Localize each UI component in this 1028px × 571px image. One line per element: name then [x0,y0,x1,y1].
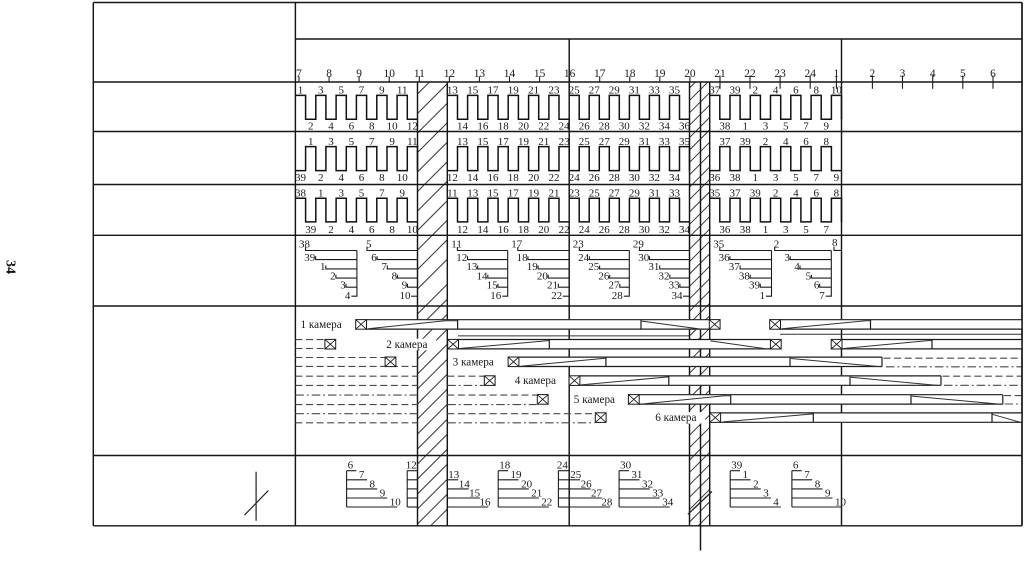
svg-text:13: 13 [457,136,469,148]
svg-text:33: 33 [649,85,661,97]
svg-text:7: 7 [813,172,819,184]
svg-text:6: 6 [793,85,799,97]
svg-text:4: 4 [794,261,800,273]
svg-text:8: 8 [369,121,375,133]
svg-text:26: 26 [599,224,611,236]
svg-text:39: 39 [731,460,743,472]
svg-text:11: 11 [414,68,425,80]
svg-text:14: 14 [504,68,516,80]
svg-text:34: 34 [659,121,671,133]
svg-text:15: 15 [477,136,489,148]
svg-text:38: 38 [295,187,307,199]
svg-text:20: 20 [684,68,696,80]
svg-text:20: 20 [518,121,530,133]
svg-text:30: 30 [620,460,632,472]
svg-text:21: 21 [549,187,560,199]
svg-text:7: 7 [804,469,810,481]
svg-text:7: 7 [819,290,825,302]
svg-text:34: 34 [2,260,17,274]
svg-text:29: 29 [619,136,631,148]
svg-text:9: 9 [824,121,830,133]
svg-text:8: 8 [815,478,821,490]
svg-text:36: 36 [709,172,721,184]
svg-text:2: 2 [773,187,779,199]
svg-text:5 камера: 5 камера [574,394,615,406]
svg-text:25: 25 [569,85,581,97]
svg-text:5: 5 [783,121,789,133]
svg-text:39: 39 [304,252,316,264]
svg-text:38: 38 [730,172,742,184]
svg-text:18: 18 [499,460,511,472]
svg-text:18: 18 [624,68,636,80]
svg-text:24: 24 [557,460,569,472]
svg-text:12: 12 [457,224,468,236]
svg-text:3: 3 [783,224,789,236]
svg-text:5: 5 [960,68,966,80]
svg-text:1: 1 [753,172,759,184]
svg-text:16: 16 [480,496,492,508]
svg-text:10: 10 [831,85,843,97]
svg-text:22: 22 [551,290,562,302]
svg-text:7: 7 [369,136,375,148]
svg-text:6: 6 [359,172,365,184]
svg-text:4: 4 [345,290,351,302]
svg-text:6 камера: 6 камера [655,412,696,424]
svg-text:2: 2 [774,239,780,251]
svg-text:2: 2 [870,68,876,80]
svg-text:13: 13 [474,68,486,80]
svg-text:8: 8 [834,187,840,199]
svg-text:1: 1 [834,68,840,80]
svg-text:6: 6 [349,121,355,133]
svg-text:3 камера: 3 камера [453,356,494,368]
svg-text:10: 10 [384,68,396,80]
svg-text:39: 39 [305,224,317,236]
svg-text:4: 4 [773,85,779,97]
svg-text:1: 1 [760,290,766,302]
svg-text:15: 15 [534,68,546,80]
svg-text:1: 1 [742,121,748,133]
svg-text:16: 16 [498,224,510,236]
svg-text:10: 10 [387,121,399,133]
svg-text:28: 28 [599,121,611,133]
svg-text:18: 18 [518,224,530,236]
svg-text:20: 20 [528,172,540,184]
svg-text:30: 30 [629,172,641,184]
svg-text:34: 34 [679,224,691,236]
svg-text:30: 30 [639,224,651,236]
svg-text:3: 3 [784,252,790,264]
svg-text:35: 35 [713,239,725,251]
svg-text:39: 39 [295,172,307,184]
svg-text:8: 8 [370,478,376,490]
svg-text:17: 17 [488,85,500,97]
svg-text:9: 9 [399,187,405,199]
svg-text:14: 14 [477,224,489,236]
svg-text:11: 11 [447,187,458,199]
svg-text:22: 22 [549,172,560,184]
svg-text:29: 29 [633,239,645,251]
svg-text:2: 2 [308,121,314,133]
svg-text:23: 23 [549,85,561,97]
svg-text:26: 26 [589,172,601,184]
svg-text:17: 17 [511,239,523,251]
svg-text:39: 39 [750,187,762,199]
svg-text:21: 21 [528,85,539,97]
svg-text:5: 5 [793,172,799,184]
svg-text:1 камера: 1 камера [301,319,342,331]
svg-text:2: 2 [318,172,324,184]
svg-text:6: 6 [793,460,799,472]
svg-text:12: 12 [407,121,418,133]
svg-text:4 камера: 4 камера [515,375,556,387]
svg-text:9: 9 [825,487,831,499]
svg-text:34: 34 [669,172,681,184]
svg-text:16: 16 [490,290,502,302]
svg-text:31: 31 [631,469,642,481]
svg-text:8: 8 [824,136,830,148]
svg-text:33: 33 [659,136,671,148]
svg-text:32: 32 [649,172,660,184]
svg-text:13: 13 [467,187,479,199]
svg-text:35: 35 [709,187,721,199]
svg-text:1: 1 [298,85,304,97]
svg-text:23: 23 [573,239,585,251]
svg-text:7: 7 [379,187,385,199]
svg-text:31: 31 [639,136,650,148]
svg-text:5: 5 [359,187,365,199]
svg-text:9: 9 [379,85,385,97]
svg-text:24: 24 [559,121,571,133]
svg-text:12: 12 [406,460,417,472]
svg-text:6: 6 [348,460,354,472]
svg-text:6: 6 [369,224,375,236]
svg-text:14: 14 [457,121,469,133]
svg-text:22: 22 [541,496,552,508]
svg-text:12: 12 [444,68,456,80]
svg-text:16: 16 [477,121,489,133]
svg-text:28: 28 [601,496,613,508]
svg-text:8: 8 [813,85,819,97]
svg-text:35: 35 [679,136,691,148]
svg-text:28: 28 [612,290,624,302]
svg-text:1: 1 [308,136,314,148]
svg-text:2: 2 [753,85,759,97]
svg-text:4: 4 [338,172,344,184]
svg-text:10: 10 [390,496,402,508]
svg-text:16: 16 [488,172,500,184]
svg-text:37: 37 [719,136,731,148]
svg-text:15: 15 [488,187,500,199]
svg-text:27: 27 [609,187,621,199]
svg-text:15: 15 [467,85,479,97]
svg-text:3: 3 [900,68,906,80]
svg-text:8: 8 [326,68,332,80]
svg-text:22: 22 [559,224,570,236]
svg-text:2 камера: 2 камера [386,339,427,351]
svg-text:7: 7 [824,224,830,236]
svg-text:17: 17 [498,136,510,148]
svg-text:4: 4 [328,121,334,133]
svg-text:23: 23 [774,68,786,80]
svg-text:2: 2 [763,136,769,148]
svg-text:32: 32 [659,224,670,236]
svg-text:4: 4 [793,187,799,199]
svg-text:4: 4 [349,224,355,236]
svg-text:27: 27 [589,85,601,97]
svg-text:4: 4 [930,68,936,80]
svg-text:3: 3 [318,85,324,97]
svg-text:1: 1 [743,469,749,481]
svg-text:16: 16 [564,68,576,80]
svg-text:9: 9 [389,136,395,148]
svg-text:6: 6 [813,187,819,199]
svg-text:19: 19 [508,85,520,97]
svg-text:3: 3 [338,187,344,199]
svg-text:28: 28 [619,224,631,236]
svg-text:17: 17 [594,68,606,80]
svg-text:6: 6 [371,252,377,264]
svg-text:2: 2 [328,224,334,236]
svg-text:19: 19 [654,68,666,80]
svg-text:3: 3 [328,136,334,148]
svg-text:27: 27 [599,136,611,148]
svg-text:18: 18 [508,172,520,184]
svg-text:3: 3 [763,121,769,133]
svg-text:9: 9 [356,68,362,80]
svg-text:7: 7 [803,121,809,133]
svg-text:7: 7 [359,85,365,97]
svg-text:23: 23 [559,136,571,148]
svg-text:3: 3 [763,487,769,499]
svg-text:1: 1 [320,261,326,273]
svg-text:26: 26 [579,121,591,133]
svg-text:38: 38 [299,239,311,251]
svg-text:17: 17 [508,187,520,199]
svg-text:14: 14 [467,172,479,184]
svg-text:10: 10 [835,496,847,508]
svg-text:21: 21 [538,136,549,148]
svg-text:5: 5 [338,85,344,97]
svg-text:5: 5 [349,136,355,148]
svg-text:1: 1 [763,224,769,236]
svg-text:2: 2 [753,478,759,490]
svg-text:8: 8 [392,270,398,282]
svg-text:28: 28 [609,172,621,184]
svg-text:31: 31 [649,187,660,199]
svg-text:8: 8 [389,224,395,236]
svg-text:37: 37 [709,85,721,97]
svg-text:22: 22 [538,121,549,133]
svg-text:4: 4 [783,136,789,148]
svg-text:29: 29 [629,187,641,199]
svg-text:12: 12 [447,172,458,184]
svg-text:2: 2 [330,270,336,282]
svg-text:24: 24 [805,68,817,80]
svg-text:30: 30 [619,121,631,133]
svg-text:4: 4 [773,496,779,508]
svg-text:7: 7 [296,68,302,80]
svg-text:25: 25 [589,187,601,199]
svg-text:39: 39 [740,136,752,148]
svg-text:21: 21 [714,68,726,80]
svg-text:24: 24 [569,172,581,184]
svg-text:6: 6 [803,136,809,148]
svg-text:13: 13 [447,85,459,97]
svg-text:29: 29 [609,85,621,97]
svg-text:1: 1 [318,187,324,199]
svg-text:11: 11 [407,136,418,148]
svg-text:10: 10 [397,172,409,184]
svg-text:31: 31 [629,85,640,97]
svg-text:38: 38 [740,224,752,236]
svg-text:5: 5 [806,270,812,282]
svg-text:35: 35 [669,85,681,97]
svg-text:8: 8 [832,237,838,249]
svg-text:24: 24 [579,224,591,236]
svg-text:32: 32 [639,121,650,133]
svg-text:5: 5 [366,239,372,251]
svg-text:36: 36 [719,224,731,236]
svg-text:36: 36 [679,121,691,133]
svg-text:20: 20 [538,224,550,236]
svg-text:38: 38 [719,121,731,133]
svg-text:3: 3 [773,172,779,184]
svg-text:33: 33 [669,187,681,199]
svg-text:34: 34 [662,496,674,508]
svg-text:19: 19 [528,187,540,199]
svg-text:6: 6 [990,68,996,80]
svg-text:37: 37 [730,187,742,199]
svg-text:9: 9 [834,172,840,184]
svg-text:19: 19 [518,136,530,148]
svg-text:5: 5 [803,224,809,236]
svg-text:11: 11 [397,85,408,97]
svg-text:18: 18 [498,121,510,133]
svg-text:7: 7 [359,469,365,481]
svg-text:25: 25 [579,136,591,148]
svg-text:10: 10 [400,290,412,302]
svg-text:11: 11 [451,239,462,251]
svg-text:10: 10 [407,224,419,236]
svg-text:23: 23 [569,187,581,199]
svg-text:8: 8 [379,172,385,184]
svg-text:7: 7 [382,261,388,273]
svg-text:9: 9 [380,487,386,499]
svg-text:39: 39 [730,85,742,97]
svg-text:22: 22 [744,68,756,80]
svg-text:34: 34 [672,290,684,302]
